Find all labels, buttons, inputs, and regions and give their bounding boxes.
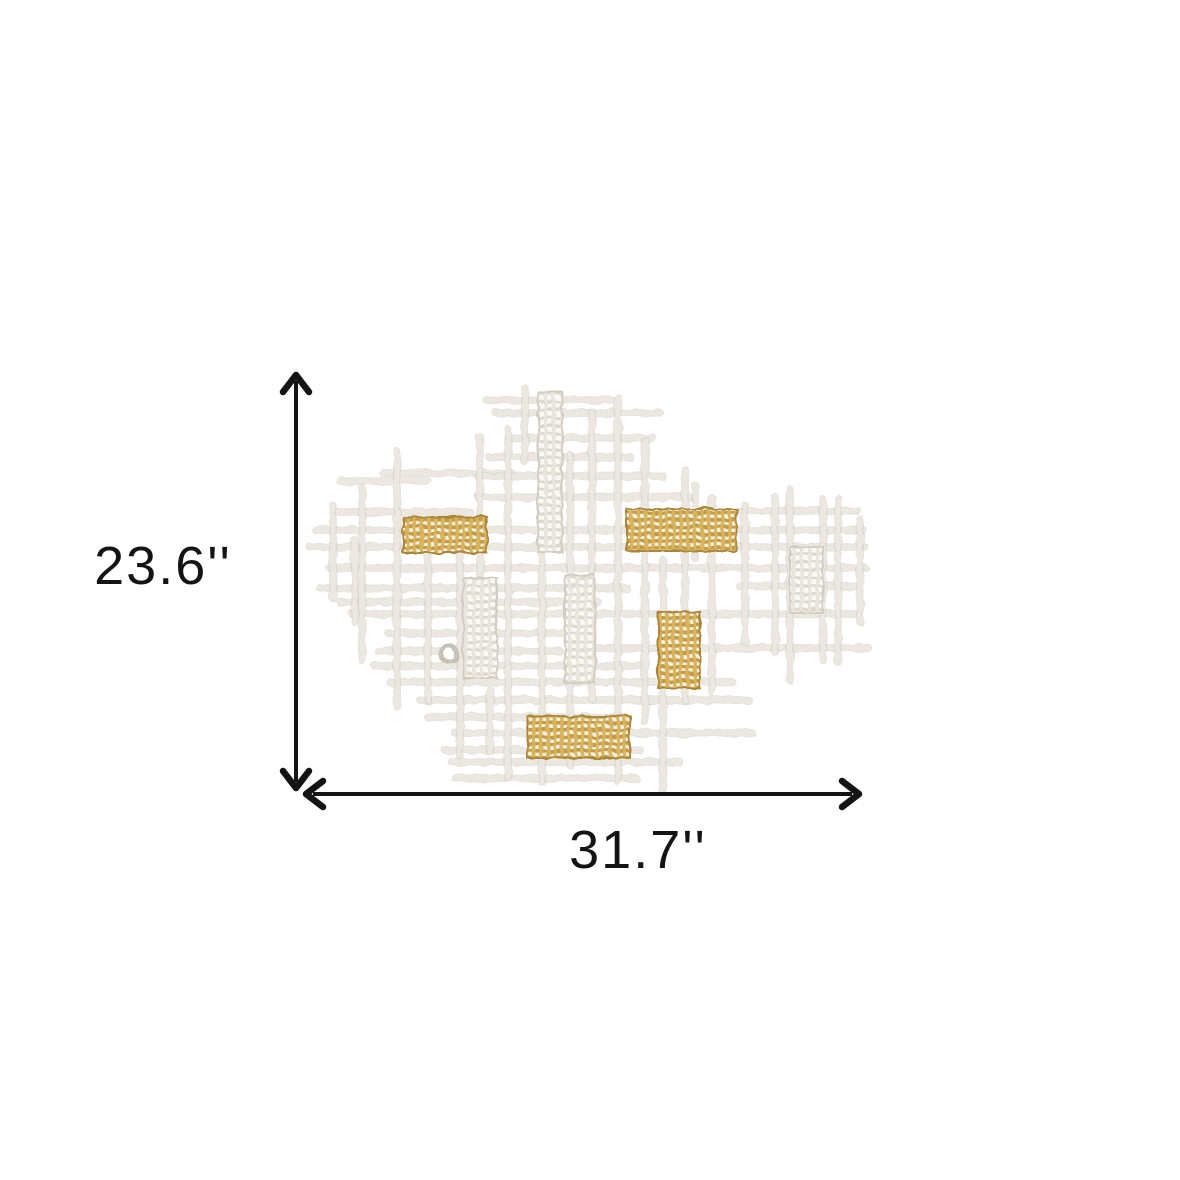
wall-decor-artwork (310, 388, 868, 792)
gold-mesh-panel (658, 612, 700, 688)
product-dimension-diagram: 23.6'' 31.7'' (0, 0, 1180, 1180)
width-dimension: 31.7'' (306, 781, 859, 880)
white-mesh-panel (565, 575, 595, 683)
gold-mesh-panel (627, 509, 737, 551)
white-mesh-panel (538, 392, 562, 552)
height-label: 23.6'' (94, 536, 232, 596)
gold-mesh-panel (403, 517, 487, 553)
width-label: 31.7'' (569, 820, 707, 880)
white-mesh-panel (790, 547, 823, 613)
scene: 23.6'' 31.7'' (0, 0, 1180, 1180)
white-mesh-panel (463, 578, 497, 678)
gold-mesh-panel (527, 716, 630, 758)
height-dimension: 23.6'' (94, 375, 309, 788)
hanging-ring (441, 646, 457, 662)
